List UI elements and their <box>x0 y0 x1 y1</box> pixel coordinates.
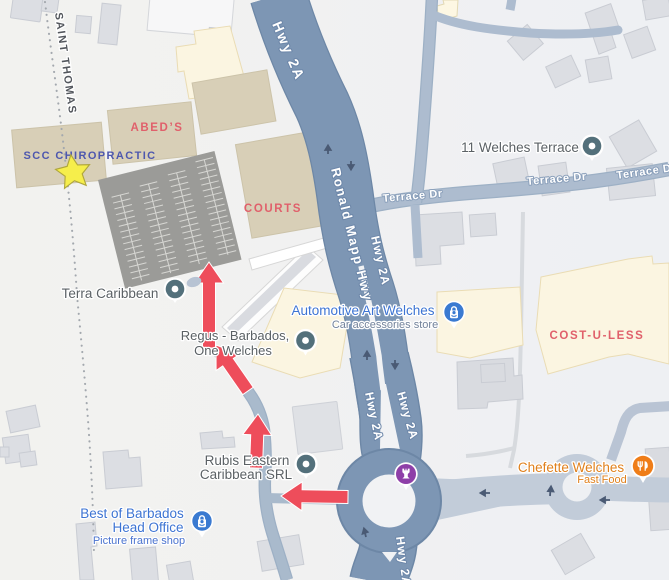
svg-text:COST-U-LESS: COST-U-LESS <box>550 330 645 342</box>
svg-text:Car accessories store: Car accessories store <box>332 319 438 331</box>
svg-text:SCC CHIROPRACTIC: SCC CHIROPRACTIC <box>23 150 156 162</box>
svg-text:Best of Barbados: Best of Barbados <box>80 506 184 521</box>
svg-text:Picture frame shop: Picture frame shop <box>93 535 185 547</box>
svg-text:Rubis Eastern: Rubis Eastern <box>205 453 290 468</box>
svg-text:Chefette Welches: Chefette Welches <box>518 460 625 475</box>
svg-text:Regus - Barbados,: Regus - Barbados, <box>181 328 289 343</box>
svg-text:Head Office: Head Office <box>112 520 183 535</box>
svg-text:Terra Caribbean: Terra Caribbean <box>62 286 159 301</box>
svg-text:Fast Food: Fast Food <box>577 474 627 486</box>
svg-text:Caribbean SRL: Caribbean SRL <box>200 467 293 482</box>
svg-text:Automotive Art Welches: Automotive Art Welches <box>291 303 434 318</box>
svg-text:COURTS: COURTS <box>244 203 302 215</box>
svg-text:ABED’S: ABED’S <box>130 122 183 134</box>
svg-text:One Welches: One Welches <box>194 343 272 358</box>
svg-text:11 Welches Terrace: 11 Welches Terrace <box>461 140 579 155</box>
